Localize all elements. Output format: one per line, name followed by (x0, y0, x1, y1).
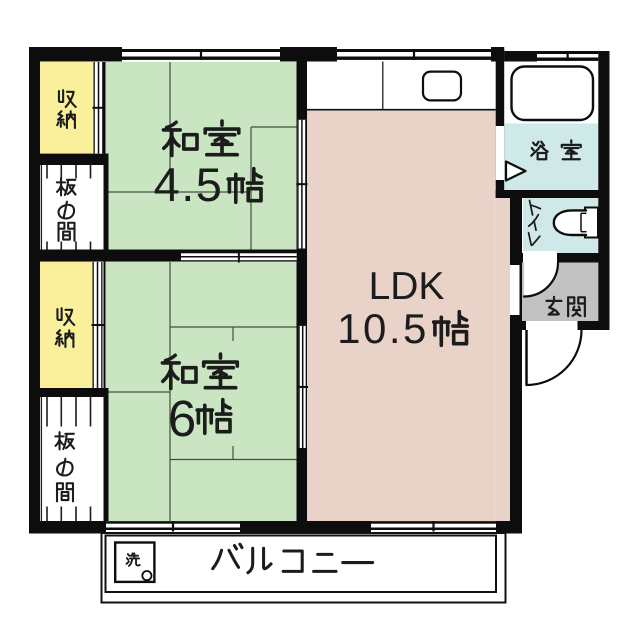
svg-text:6: 6 (168, 390, 196, 447)
svg-text:LDK: LDK (369, 265, 445, 308)
svg-text:10.5: 10.5 (337, 305, 429, 352)
svg-text:4.5: 4.5 (154, 158, 224, 211)
